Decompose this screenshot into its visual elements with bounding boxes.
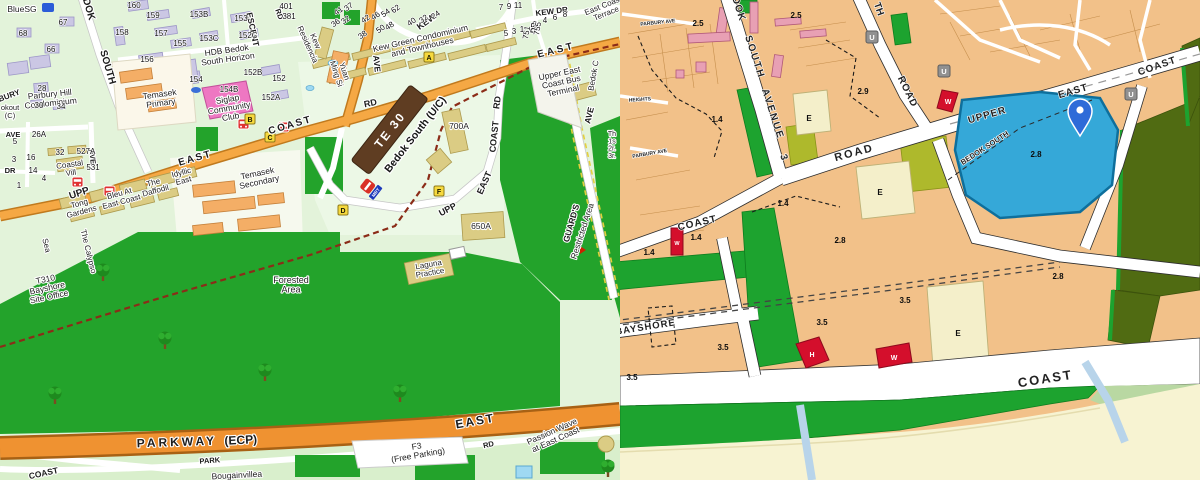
- map-comparison-view: A B C D F TE 30 Bedok South: [0, 0, 1200, 480]
- map-label: Bougainvillea: [211, 469, 262, 480]
- map-label: 3: [12, 155, 17, 164]
- street-map[interactable]: A B C D F TE 30 Bedok South: [0, 0, 627, 480]
- map-label: 2.5: [790, 11, 802, 20]
- red-plot-letter: W: [945, 99, 952, 106]
- map-label: 8: [563, 10, 568, 19]
- map-label: RD: [491, 95, 503, 110]
- red-plot-letter: W: [891, 355, 898, 362]
- map-label: 1.4: [643, 248, 655, 257]
- map-label: 152B: [244, 68, 263, 77]
- map-label: E: [806, 114, 812, 123]
- map-label: 153: [234, 14, 248, 23]
- map-label: 154B: [220, 85, 239, 94]
- marker-d[interactable]: D: [338, 205, 348, 215]
- map-label: 67: [59, 18, 68, 27]
- map-label: 7: [499, 3, 504, 12]
- map-label: 154: [189, 75, 203, 84]
- map-label: 30: [35, 101, 44, 110]
- map-label: 68: [19, 29, 28, 38]
- map-label: 160: [127, 1, 141, 10]
- map-label: 158: [115, 28, 129, 37]
- station-badge-icon: [191, 87, 201, 93]
- map-label: BlueSG: [7, 4, 36, 14]
- map-label: DR: [5, 166, 16, 175]
- map-label: 3.5: [717, 343, 729, 352]
- master-plan-map[interactable]: W W H W U U U DOKSOUTHAVENUE3RO: [605, 0, 1200, 480]
- map-label: 2.5: [692, 19, 704, 28]
- swimming-pool: [516, 466, 532, 478]
- map-label: 2.8: [1052, 272, 1064, 281]
- map-label: 159: [146, 11, 160, 20]
- bluesg-icon[interactable]: [42, 3, 54, 12]
- map-label: 1.4: [777, 199, 789, 208]
- map-label: 527A: [77, 147, 96, 156]
- map-label: Th1s2r.3r.: [608, 131, 616, 160]
- map-label: 26A: [32, 130, 47, 139]
- map-label: 153C: [199, 34, 218, 43]
- marker-f-label: F: [437, 189, 442, 196]
- map-label: 16: [27, 153, 36, 162]
- map-label: 153B: [190, 10, 209, 19]
- map-label: 4: [543, 16, 548, 25]
- map-label: 700A: [449, 121, 469, 131]
- map-label: 5: [13, 137, 18, 146]
- map-label: 156: [140, 55, 154, 64]
- utility-letter: U: [1128, 90, 1133, 99]
- map-label: 1.4: [690, 233, 702, 242]
- map-label: 3.5: [899, 296, 911, 305]
- map-label: 66: [47, 45, 56, 54]
- map-label: 152C: [238, 31, 257, 40]
- map-label: 650A: [471, 221, 491, 231]
- maps-canvas: A B C D F TE 30 Bedok South: [0, 0, 1200, 480]
- map-label: 2.8: [1030, 150, 1042, 159]
- map-label: 1.4: [711, 115, 723, 124]
- map-label: 2.8: [834, 236, 846, 245]
- map-label: PARKWAY: [136, 434, 217, 451]
- map-label: 9: [507, 2, 512, 11]
- marker-a-label: A: [426, 55, 431, 62]
- map-label: 381: [282, 12, 296, 21]
- map-label: 6: [553, 13, 558, 22]
- map-label: 4: [42, 174, 47, 183]
- map-label: 155: [173, 39, 187, 48]
- map-label: 3.5: [626, 373, 638, 382]
- marker-b-label: B: [247, 117, 252, 124]
- map-label: 401: [279, 2, 293, 11]
- map-label: 32: [56, 148, 65, 157]
- map-label: 1: [17, 181, 22, 190]
- utility-letter: U: [869, 33, 874, 42]
- utility-letter: U: [941, 67, 946, 76]
- map-label: 2.9: [857, 87, 869, 96]
- red-plot-letter: H: [809, 352, 814, 359]
- map-label: 14: [29, 166, 38, 175]
- map-label: E: [955, 329, 961, 338]
- map-label: 5: [504, 29, 509, 38]
- map-label: 3: [512, 27, 517, 36]
- marker-b[interactable]: B: [245, 114, 255, 124]
- map-label: 152: [272, 74, 286, 83]
- map-label: 11: [514, 1, 523, 10]
- bus-stop-icon[interactable]: [72, 177, 83, 187]
- map-label: AVE: [371, 55, 383, 73]
- map-label: 28: [38, 84, 47, 93]
- map-label: 531: [86, 163, 100, 172]
- map-label: 3.5: [816, 318, 828, 327]
- marker-f[interactable]: F: [434, 186, 444, 196]
- red-plot-letter: W: [674, 241, 680, 247]
- marker-a[interactable]: A: [424, 52, 434, 62]
- map-label: E: [877, 188, 883, 197]
- map-label: 157: [154, 29, 168, 38]
- map-label: (ECP): [224, 432, 257, 448]
- map-label: PARK: [199, 455, 221, 465]
- map-label: 34: [57, 102, 66, 111]
- map-label: 152A: [262, 93, 281, 102]
- marker-d-label: D: [340, 208, 345, 215]
